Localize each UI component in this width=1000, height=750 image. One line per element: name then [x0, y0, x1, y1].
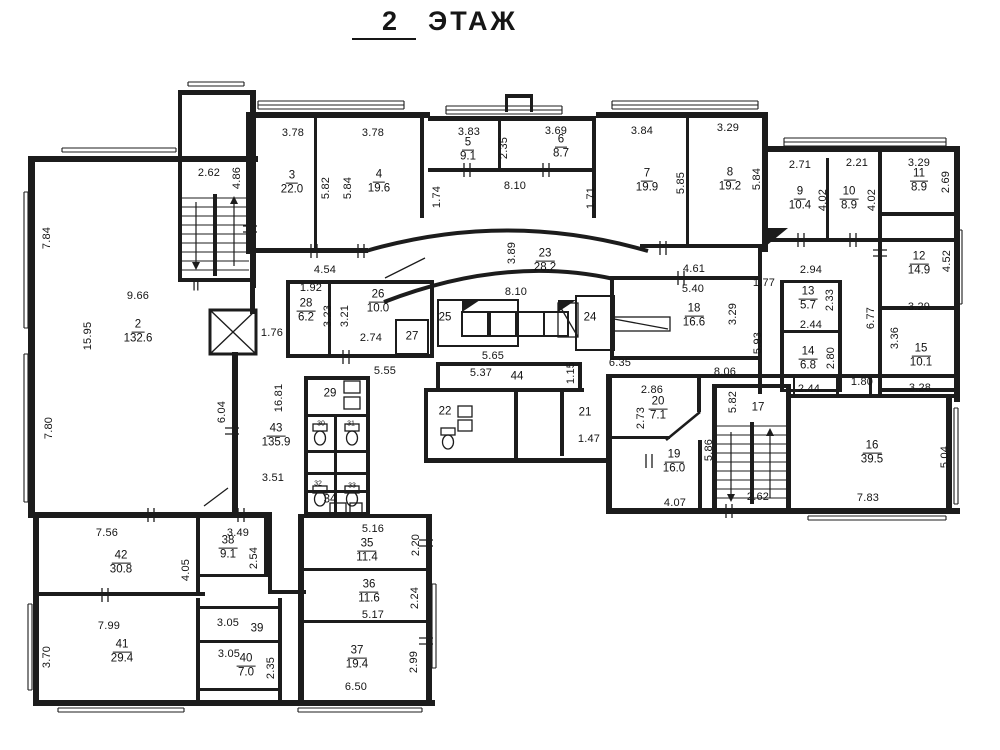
fixtures	[204, 258, 700, 514]
stairwell-left	[181, 194, 249, 276]
floorplan-drawing	[0, 0, 1000, 750]
toilet-icon	[345, 424, 359, 445]
small-room-boxes	[396, 296, 958, 396]
toilet-icon	[313, 486, 327, 506]
floor-plan-page: 2ЭТАЖ	[0, 0, 1000, 750]
walls	[28, 90, 960, 706]
elevator	[210, 310, 256, 354]
stairwell-right	[716, 422, 788, 504]
toilet-icon	[313, 424, 327, 445]
toilet-icon	[441, 428, 455, 449]
